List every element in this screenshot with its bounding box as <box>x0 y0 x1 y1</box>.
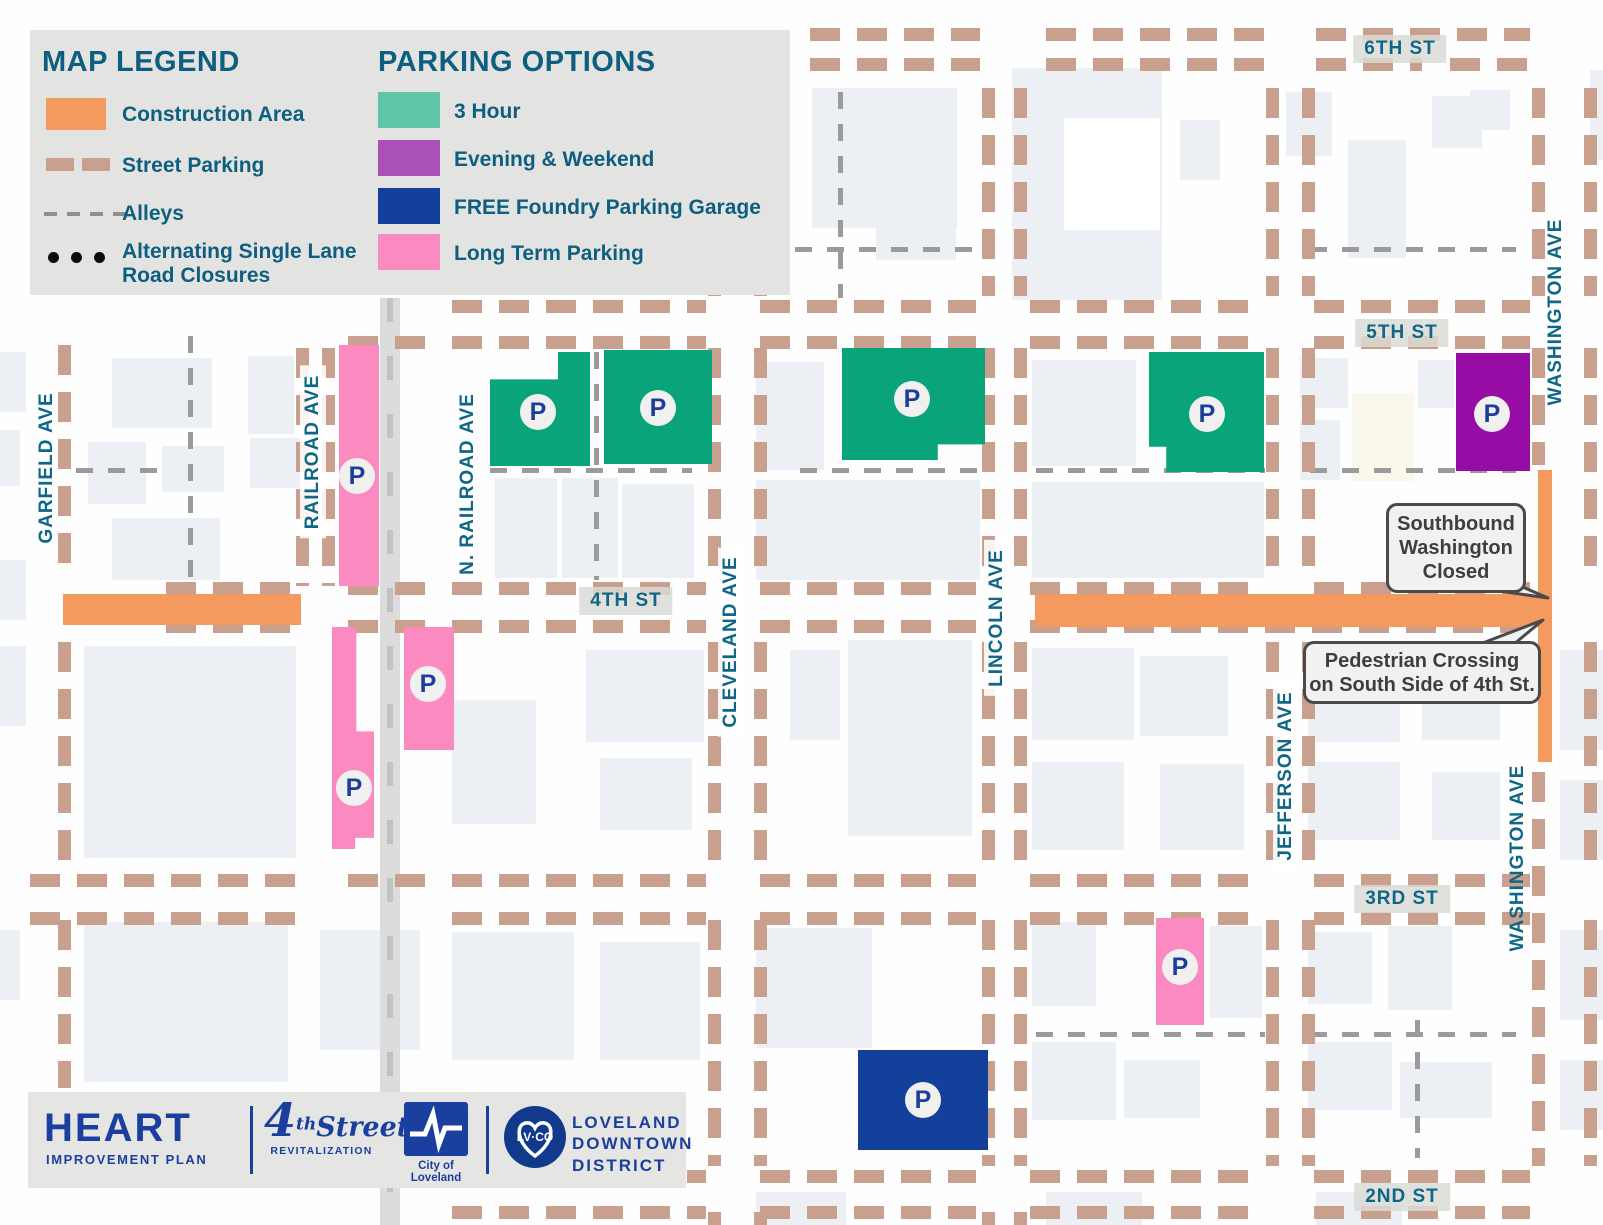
building-footprint <box>1140 656 1228 736</box>
alley-line <box>1036 1032 1265 1037</box>
alley-dash-icon <box>44 212 57 216</box>
building-footprint <box>1210 926 1262 1018</box>
district-line: DISTRICT <box>572 1155 693 1176</box>
street-parking-line <box>810 58 980 71</box>
street-parking-line <box>58 642 71 870</box>
loveland-downtown-district-logo: LOVELAND DOWNTOWN DISTRICT <box>572 1112 693 1176</box>
downtown-parking-map: PPPPPPPPPP 6TH ST5TH ST4TH ST3RD ST2ND S… <box>0 0 1603 1225</box>
street-parking-line <box>30 874 298 887</box>
street-word: Street <box>316 1112 409 1143</box>
legend-item-label: Alternating Single Lane <box>122 240 357 264</box>
legend-item-label: Street Parking <box>122 154 264 178</box>
fourth-street-revitalization-logo: 4thStreet REVITALIZATION <box>264 1100 379 1157</box>
street-parking-line <box>1450 58 1530 71</box>
building-footprint <box>1432 772 1500 840</box>
street-parking-line <box>1584 88 1597 296</box>
street-label: 6TH ST <box>1353 35 1446 63</box>
building-footprint <box>1032 648 1134 740</box>
road-closure-dot-icon <box>48 252 59 263</box>
building-footprint <box>1124 1060 1200 1118</box>
street-parking-line <box>760 874 976 887</box>
street-parking-line <box>1584 920 1597 1166</box>
building-footprint <box>84 922 288 1082</box>
construction-area <box>63 594 301 625</box>
building-footprint <box>876 160 956 260</box>
building-footprint <box>1308 762 1400 840</box>
parking-p-icon: P <box>410 666 446 702</box>
street-parking-line <box>1014 348 1027 578</box>
parking-p-icon: P <box>336 770 372 806</box>
street-parking-dash-icon <box>82 158 110 171</box>
alley-line <box>76 468 166 473</box>
street-parking-line <box>58 345 71 580</box>
street-parking-line <box>754 348 767 578</box>
street-parking-line <box>1014 88 1027 296</box>
building-footprint <box>112 518 220 580</box>
street-parking-line <box>1030 300 1262 313</box>
street-parking-line <box>810 28 980 41</box>
building-footprint <box>248 356 294 434</box>
building-footprint <box>0 560 26 620</box>
callout-pedestrian-crossing: Pedestrian Crossing on South Side of 4th… <box>1303 641 1541 704</box>
building-footprint <box>790 650 840 740</box>
alley-line <box>838 92 843 298</box>
street-parking-line <box>760 582 976 595</box>
alley-line <box>1310 1032 1516 1037</box>
building-footprint <box>756 480 980 580</box>
lvco-heart-logo: LV·CO <box>502 1104 568 1175</box>
road-closure-dot-icon <box>71 252 82 263</box>
building-footprint <box>1400 1062 1492 1118</box>
parking-p-icon: P <box>905 1082 941 1118</box>
legend-item-label: 3 Hour <box>454 100 521 124</box>
alley-line <box>795 247 978 252</box>
street-parking-line <box>982 1212 995 1225</box>
building-footprint <box>88 442 146 504</box>
building-footprint <box>162 446 224 492</box>
construction-area-swatch <box>46 98 106 130</box>
street-parking-line <box>452 336 706 349</box>
street-parking-line <box>754 1212 767 1225</box>
street-parking-line <box>452 874 706 887</box>
street-parking-line <box>1302 348 1315 578</box>
footer-divider <box>486 1106 489 1174</box>
building-footprint <box>1388 926 1452 1010</box>
building-footprint <box>1032 1042 1116 1120</box>
parking-p-icon: P <box>1189 396 1225 432</box>
street-parking-line <box>1314 1170 1530 1183</box>
building-footprint <box>0 646 26 726</box>
alley-dash-icon <box>67 212 80 216</box>
street-parking-line <box>1046 28 1264 41</box>
callout-line: Closed <box>1389 560 1523 584</box>
building-footprint <box>452 700 536 824</box>
street-parking-line <box>452 300 706 313</box>
building-footprint <box>1032 360 1136 466</box>
lvco-text: LV·CO <box>517 1130 553 1144</box>
street-label: 2ND ST <box>1354 1183 1450 1211</box>
street-parking-line <box>708 920 721 1166</box>
building-footprint <box>1308 1042 1392 1110</box>
parking-p-icon: P <box>894 381 930 417</box>
street-parking-line <box>1532 772 1545 1166</box>
callout-line: Pedestrian Crossing <box>1306 649 1538 673</box>
building-footprint <box>756 928 872 1048</box>
street-parking-line <box>1584 348 1597 578</box>
building-footprint <box>84 646 296 858</box>
alley-dash-icon <box>90 212 103 216</box>
street-parking-line <box>452 620 706 633</box>
heartbeat-icon <box>404 1102 468 1156</box>
street-parking-line <box>754 642 767 870</box>
street-parking-line <box>754 920 767 1166</box>
callout-line: Washington <box>1389 536 1523 560</box>
building-footprint <box>1418 360 1454 408</box>
street-parking-line <box>1030 336 1262 349</box>
alley-line <box>594 352 599 580</box>
callout-line: Southbound <box>1389 512 1523 536</box>
street-parking-line <box>348 874 440 887</box>
street-parking-line <box>1302 920 1315 1166</box>
street-parking-line <box>1266 88 1279 296</box>
parking-options-title: PARKING OPTIONS <box>378 46 656 79</box>
legend-item-label: Alleys <box>122 202 184 226</box>
street-parking-line <box>1030 1206 1262 1219</box>
road-closure-dot-icon <box>94 252 105 263</box>
building-footprint <box>600 758 692 830</box>
building-footprint <box>586 650 704 742</box>
alley-line <box>490 468 692 473</box>
heart-logo: HEART <box>44 1106 192 1151</box>
railroad-ties <box>387 298 393 1225</box>
building-footprint <box>1308 932 1372 1004</box>
legend-item-label: Evening & Weekend <box>454 148 654 172</box>
avenue-label: JEFFERSON AVE <box>1273 682 1299 869</box>
avenue-label: WASHINGTON AVE <box>1507 765 1529 952</box>
alley-line <box>1415 1020 1420 1158</box>
building-footprint <box>112 358 212 428</box>
street-label: 5TH ST <box>1355 319 1448 347</box>
legend-item-label: Construction Area <box>122 103 304 127</box>
building-footprint <box>622 484 694 578</box>
three-hour-swatch <box>378 92 440 128</box>
street-parking-line <box>1030 874 1262 887</box>
street-parking-line <box>1030 1170 1262 1183</box>
street-parking-line <box>760 300 976 313</box>
street-parking-line <box>760 620 976 633</box>
parking-p-icon: P <box>1162 949 1198 985</box>
building-footprint <box>1470 90 1510 130</box>
avenue-label: WASHINGTON AVE <box>1545 219 1567 406</box>
parking-p-icon: P <box>1474 396 1510 432</box>
street-parking-line <box>452 1206 706 1219</box>
street-parking-dash-icon <box>46 158 74 171</box>
construction-area <box>1035 594 1551 627</box>
heart-logo-subtitle: IMPROVEMENT PLAN <box>46 1152 207 1167</box>
alley-line <box>1310 247 1516 252</box>
street-parking-line <box>760 912 976 925</box>
th-glyph: th <box>296 1115 316 1135</box>
construction-area <box>1538 470 1552 762</box>
avenue-label: CLEVELAND AVE <box>718 547 744 736</box>
street-parking-line <box>982 88 995 296</box>
parking-p-icon: P <box>339 458 375 494</box>
avenue-label: N. RAILROAD AVE <box>457 393 479 575</box>
callout-southbound-washington-closed: Southbound Washington Closed <box>1386 503 1526 593</box>
long-term-parking-swatch <box>378 234 440 270</box>
street-parking-line <box>1014 1212 1027 1225</box>
city-of-loveland-logo: City of Loveland <box>400 1102 472 1184</box>
street-parking-line <box>1266 348 1279 578</box>
lvco-heart-icon: LV·CO <box>502 1104 568 1170</box>
district-line: DOWNTOWN <box>572 1133 693 1154</box>
footer-logo-strip: HEART IMPROVEMENT PLAN 4thStreet REVITAL… <box>28 1092 686 1188</box>
building-footprint <box>562 478 618 578</box>
free-foundry-garage-swatch <box>378 188 440 224</box>
street-parking-line <box>1314 300 1530 313</box>
street-parking-line <box>760 1170 976 1183</box>
avenue-label: GARFIELD AVE <box>36 392 58 543</box>
building-footprint <box>1032 762 1124 850</box>
street-parking-line <box>1030 912 1262 925</box>
district-line: LOVELAND <box>572 1112 693 1133</box>
street-parking-line <box>58 920 71 1088</box>
street-parking-line <box>1014 920 1027 1166</box>
alley-line <box>188 336 193 580</box>
avenue-label: RAILROAD AVE <box>300 366 326 539</box>
street-label: 4TH ST <box>579 587 672 615</box>
building-footprint <box>1032 482 1264 578</box>
parking-p-icon: P <box>520 394 556 430</box>
avenue-label: LINCOLN AVE <box>984 540 1010 696</box>
building-footprint <box>1064 118 1160 230</box>
building-footprint <box>0 430 20 486</box>
street-parking-line <box>1532 348 1545 465</box>
street-label: 3RD ST <box>1354 885 1450 913</box>
street-parking-line <box>1532 88 1545 296</box>
alley-line <box>800 468 985 473</box>
city-of-loveland-caption: City of Loveland <box>400 1160 472 1184</box>
four-glyph: 4 <box>264 1093 296 1147</box>
building-footprint <box>1348 140 1406 258</box>
street-parking-line <box>1046 58 1264 71</box>
street-parking-line <box>1302 88 1315 296</box>
building-footprint <box>0 352 26 412</box>
legend-item-label: FREE Foundry Parking Garage <box>454 196 761 220</box>
legend-item-label: Road Closures <box>122 264 270 288</box>
building-footprint <box>1160 764 1244 850</box>
revitalization-word: REVITALIZATION <box>264 1145 379 1157</box>
legend-title: MAP LEGEND <box>42 46 240 79</box>
legend-item-label: Long Term Parking <box>454 242 644 266</box>
footer-divider <box>250 1106 253 1174</box>
street-parking-line <box>1014 642 1027 870</box>
street-parking-line <box>760 336 976 349</box>
street-parking-line <box>1314 912 1530 925</box>
map-legend: MAP LEGEND Construction Area Street Park… <box>30 30 790 295</box>
street-parking-line <box>1584 642 1597 870</box>
city-of-loveland-mark <box>404 1102 468 1156</box>
parking-p-icon: P <box>640 390 676 426</box>
building-footprint <box>1180 120 1220 180</box>
building-footprint <box>320 930 420 1050</box>
building-footprint <box>452 932 574 1060</box>
street-parking-line <box>760 1206 976 1219</box>
building-footprint <box>0 930 20 1000</box>
building-footprint <box>600 942 700 1060</box>
building-footprint <box>495 478 557 578</box>
street-parking-line <box>1266 920 1279 1166</box>
street-parking-line <box>708 1212 721 1225</box>
street-parking-line <box>452 912 706 925</box>
building-footprint <box>848 640 972 836</box>
parking-area-longterm <box>332 627 374 849</box>
building-footprint <box>1032 922 1096 1006</box>
callout-line: on South Side of 4th St. <box>1306 673 1538 697</box>
evening-weekend-swatch <box>378 140 440 176</box>
